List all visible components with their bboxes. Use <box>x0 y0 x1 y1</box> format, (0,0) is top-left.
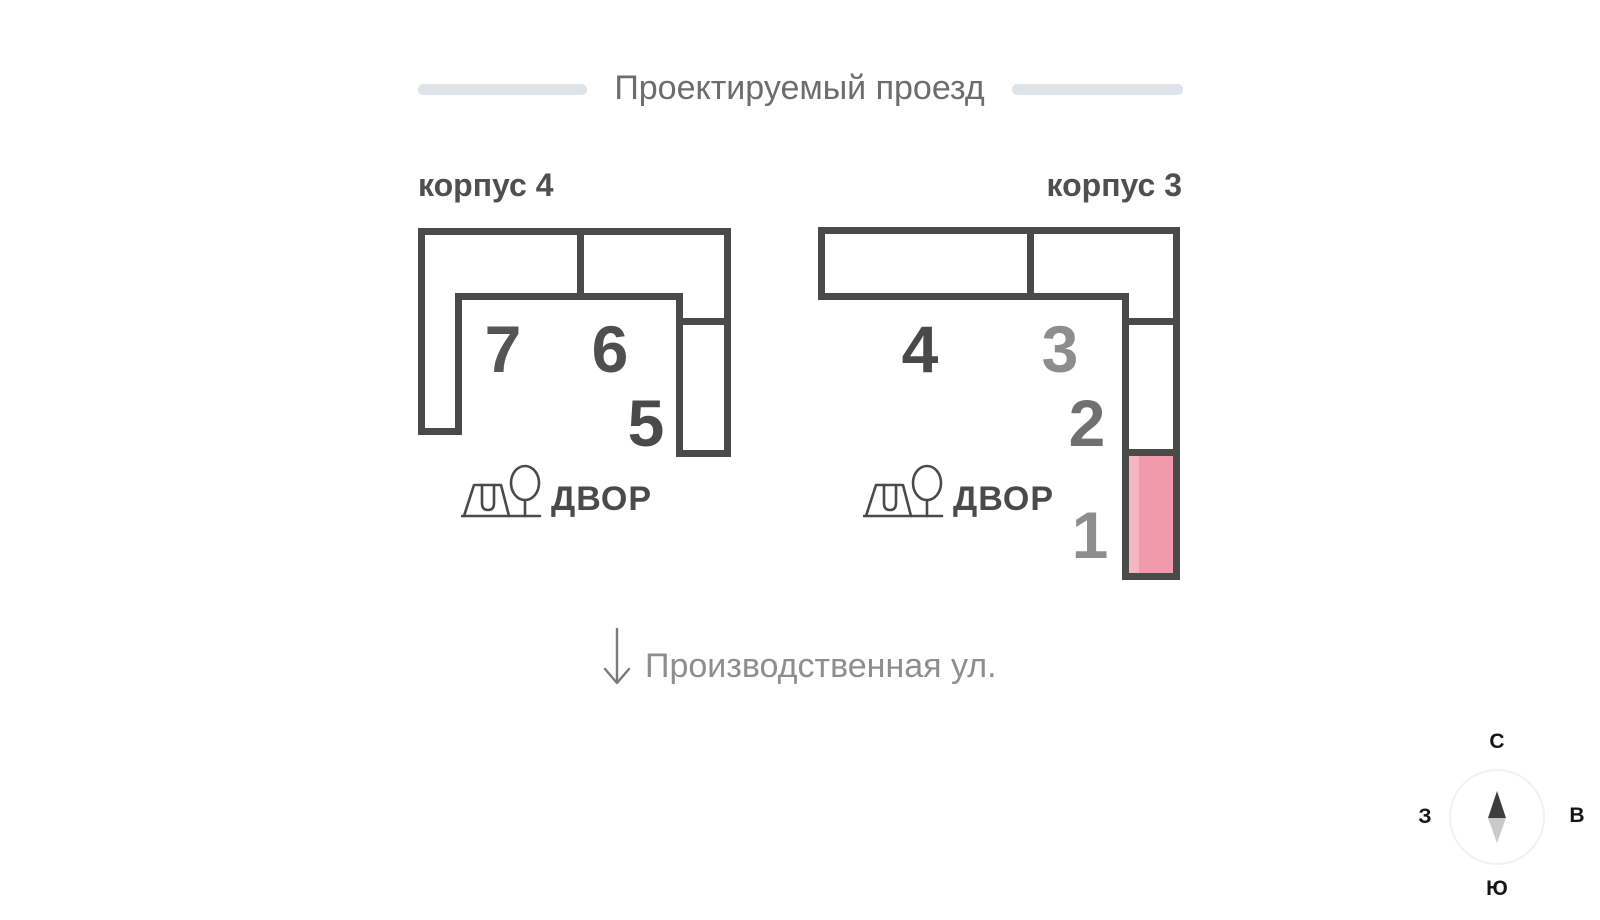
k4-inner-left-edge <box>455 293 462 435</box>
compass-east-label: В <box>1565 804 1589 828</box>
arrow-down-icon <box>601 626 633 690</box>
playground-swing-icon <box>866 485 911 516</box>
street-top-label: Проектируемый проезд <box>587 68 1012 108</box>
k3-column-left-edge <box>1122 293 1129 580</box>
k3-top-edge <box>818 227 1180 234</box>
swing-seat <box>482 485 494 510</box>
k3-divider-4-3 <box>1027 227 1034 300</box>
compass-needle-north-icon <box>1488 791 1506 818</box>
k3-left-edge <box>818 227 825 300</box>
swing-seat <box>884 485 896 510</box>
k4-inner-bottom-edge <box>455 293 683 300</box>
k3-inner-bottom-edge <box>818 293 1129 300</box>
k4-divider-7-6 <box>577 228 584 300</box>
k4-right-edge <box>724 228 731 457</box>
section-6[interactable]: 6 <box>592 316 629 382</box>
section-7[interactable]: 7 <box>485 316 522 382</box>
playground-swing-icon <box>464 485 509 516</box>
street-top-bar-right <box>1012 84 1183 95</box>
section-3[interactable]: 3 <box>1042 316 1079 382</box>
section-1[interactable]: 1 <box>1072 502 1109 568</box>
k4-divider-6-5 <box>676 318 731 325</box>
k3-column-bottom <box>1122 573 1180 580</box>
yard-icons-k3 <box>863 460 945 520</box>
yard-label-k4: ДВОР <box>551 480 652 518</box>
tree-icon <box>511 466 539 500</box>
k3-divider-3-2 <box>1122 318 1180 325</box>
compass-needle-south-icon <box>1488 818 1506 843</box>
section-4[interactable]: 4 <box>902 316 939 382</box>
tree-icon <box>913 466 941 500</box>
street-top-bar-left <box>418 84 587 95</box>
building-korpus-3-label: корпус 3 <box>882 166 1182 204</box>
street-bottom-label: Производственная ул. <box>645 646 997 686</box>
k3-right-edge <box>1173 227 1180 580</box>
k4-left-edge <box>418 228 425 435</box>
section-1-highlight[interactable] <box>1129 456 1173 573</box>
site-plan: Проектируемый проезд корпус 4 7 6 5 <box>0 0 1600 920</box>
yard-label-k3: ДВОР <box>953 480 1054 518</box>
k4-right-column-bottom <box>676 450 731 457</box>
compass-south-label: Ю <box>1485 877 1509 901</box>
k3-divider-2-1 <box>1122 449 1180 456</box>
section-2[interactable]: 2 <box>1069 390 1106 456</box>
yard-icons-k4 <box>461 460 543 520</box>
compass-west-label: З <box>1413 805 1437 829</box>
compass-north-label: С <box>1485 730 1509 754</box>
k4-top-edge <box>418 228 731 235</box>
building-korpus-4-label: корпус 4 <box>418 166 554 204</box>
section-5[interactable]: 5 <box>628 390 665 456</box>
